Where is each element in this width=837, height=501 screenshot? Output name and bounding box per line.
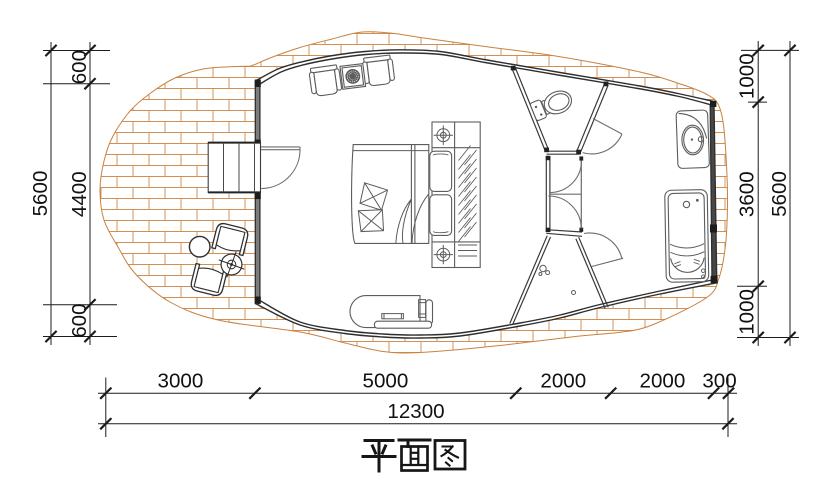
svg-text:3000: 3000 [157, 370, 203, 393]
svg-text:2000: 2000 [540, 370, 586, 393]
svg-text:300: 300 [702, 370, 736, 393]
svg-text:2000: 2000 [639, 370, 685, 393]
svg-text:4400: 4400 [68, 171, 91, 217]
svg-text:5600: 5600 [768, 171, 791, 217]
svg-text:5000: 5000 [362, 370, 408, 393]
svg-text:5600: 5600 [29, 171, 52, 217]
svg-text:600: 600 [68, 303, 91, 337]
svg-text:3600: 3600 [736, 171, 759, 217]
svg-text:600: 600 [68, 50, 91, 84]
svg-text:1000: 1000 [736, 289, 759, 335]
svg-text:12300: 12300 [387, 400, 444, 423]
svg-text:1000: 1000 [736, 53, 759, 99]
